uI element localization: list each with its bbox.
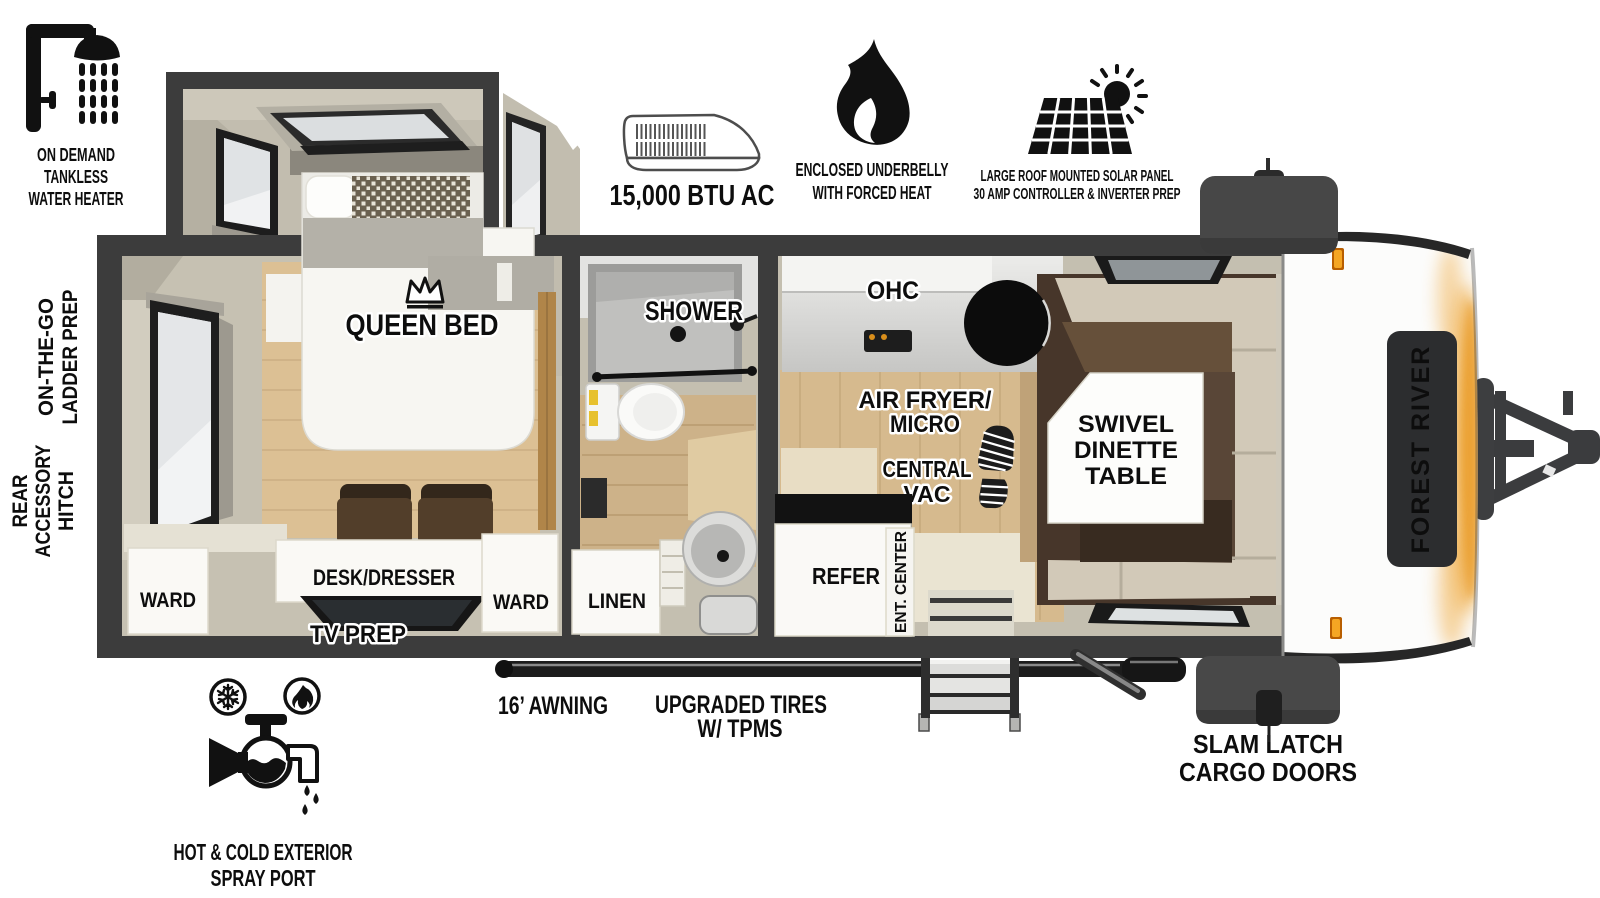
svg-text:WATER HEATER: WATER HEATER [29,189,124,209]
svg-text:REAR: REAR [9,475,32,528]
svg-text:CENTRAL: CENTRAL [883,456,972,482]
svg-text:FOREST RIVER: FOREST RIVER [1407,345,1435,554]
svg-text:ENCLOSED UNDERBELLY: ENCLOSED UNDERBELLY [796,160,949,180]
svg-text:HITCH: HITCH [55,471,78,531]
svg-text:OHC: OHC [867,277,919,305]
svg-text:LARGE ROOF MOUNTED SOLAR PANEL: LARGE ROOF MOUNTED SOLAR PANEL [981,168,1174,185]
svg-text:ON-THE-GO: ON-THE-GO [35,298,58,416]
svg-text:QUEEN BED: QUEEN BED [346,309,499,342]
svg-text:30 AMP CONTROLLER & INVERTER P: 30 AMP CONTROLLER & INVERTER PREP [974,186,1181,203]
svg-text:WARD: WARD [140,589,196,612]
svg-text:WARD: WARD [493,591,549,614]
svg-text:ACCESSORY: ACCESSORY [32,445,55,558]
svg-text:SWIVEL: SWIVEL [1078,411,1174,438]
svg-text:LADDER PREP: LADDER PREP [59,290,82,425]
svg-text:SPRAY PORT: SPRAY PORT [211,865,316,891]
svg-text:16’ AWNING: 16’ AWNING [498,692,608,720]
svg-text:REFER: REFER [812,563,880,589]
svg-text:TANKLESS: TANKLESS [44,167,108,187]
svg-text:MICRO: MICRO [890,411,960,438]
svg-text:WITH FORCED HEAT: WITH FORCED HEAT [813,183,932,203]
svg-text:ON DEMAND: ON DEMAND [37,145,115,165]
svg-text:15,000 BTU AC: 15,000 BTU AC [610,180,775,212]
svg-text:LINEN: LINEN [588,590,646,613]
svg-text:TABLE: TABLE [1085,463,1167,490]
svg-text:DESK/DRESSER: DESK/DRESSER [313,565,455,590]
svg-text:CARGO DOORS: CARGO DOORS [1179,757,1357,787]
svg-text:W/ TPMS: W/ TPMS [698,715,783,743]
svg-text:TV PREP: TV PREP [310,621,406,648]
svg-text:HOT & COLD EXTERIOR: HOT & COLD EXTERIOR [174,839,353,865]
svg-text:AIR FRYER/: AIR FRYER/ [859,387,992,414]
svg-text:ENT. CENTER: ENT. CENTER [893,531,910,633]
svg-text:DINETTE: DINETTE [1074,437,1178,464]
svg-text:SHOWER: SHOWER [645,296,743,326]
